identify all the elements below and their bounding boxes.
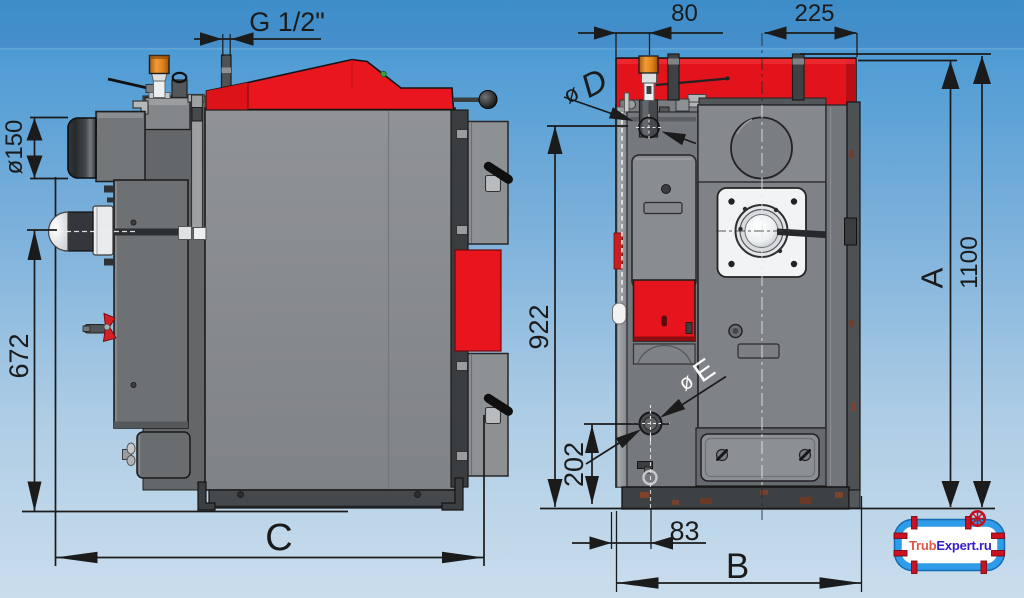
svg-text:ø150: ø150 — [1, 120, 28, 175]
svg-text:202: 202 — [559, 442, 589, 487]
svg-text:225: 225 — [794, 0, 834, 27]
svg-text:80: 80 — [671, 0, 698, 27]
svg-text:B: B — [726, 547, 749, 586]
svg-text:83: 83 — [669, 516, 699, 546]
svg-text:1100: 1100 — [956, 236, 983, 289]
svg-text:G 1/2": G 1/2" — [249, 7, 325, 37]
svg-text:672: 672 — [4, 333, 34, 378]
svg-text:C: C — [265, 517, 292, 559]
svg-text:TrubExpert.ru: TrubExpert.ru — [909, 538, 992, 553]
svg-text:922: 922 — [524, 304, 554, 349]
svg-text:A: A — [915, 267, 950, 288]
